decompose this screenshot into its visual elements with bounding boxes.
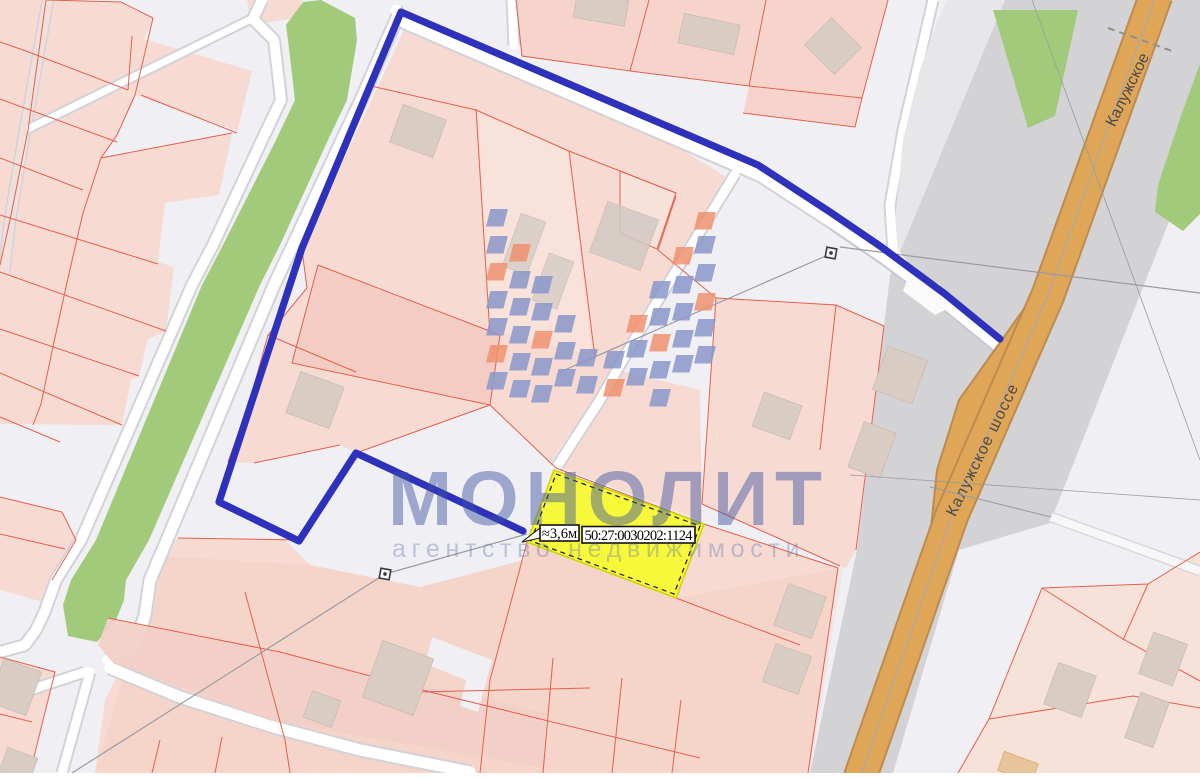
svg-text:МОНОЛИТ: МОНОЛИТ bbox=[388, 456, 825, 542]
svg-text:агентство недвижимости: агентство недвижимости bbox=[392, 535, 806, 563]
